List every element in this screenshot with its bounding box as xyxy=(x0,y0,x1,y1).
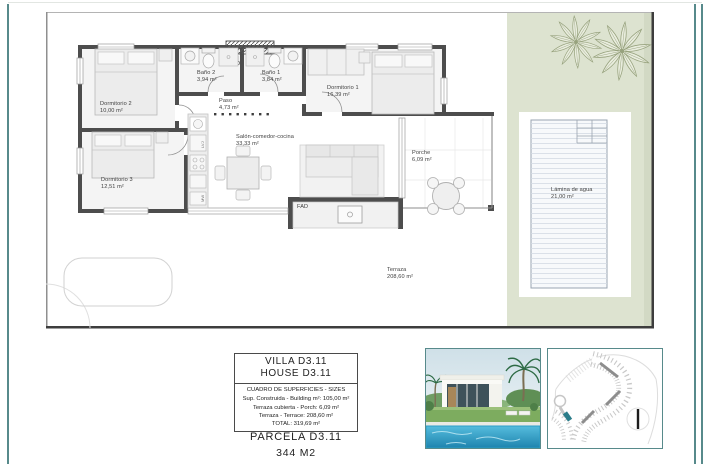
roundabout xyxy=(555,396,566,407)
kitchen-appliance-label: MW xyxy=(200,195,205,202)
room-label-dormitorio3: Dormitorio 3 12,51 m² xyxy=(101,177,133,190)
kitchen-counter: LVJ MW xyxy=(188,114,208,208)
pool xyxy=(519,112,631,297)
dining-table xyxy=(215,146,271,200)
house-title: HOUSE D3.11 xyxy=(235,368,357,380)
surface-row-terrace: Terraza - Terrace: 208,60 m² xyxy=(236,412,356,420)
room-label-bano1: Baño 1 3,84 m² xyxy=(262,70,282,83)
porch-table xyxy=(428,178,465,215)
room-label-dormitorio1: Dormitorio 1 16,39 m² xyxy=(327,85,359,98)
kitchen-appliance-label: LVJ xyxy=(200,141,205,148)
garden-area xyxy=(507,11,656,328)
parcela-area: 344 M2 xyxy=(234,447,358,459)
surface-row-building: Sup. Construida - Building m²: 105,00 m² xyxy=(236,395,356,403)
villa-render-thumbnail xyxy=(425,348,541,449)
villa-building xyxy=(440,375,504,410)
site-plan-image xyxy=(548,349,662,448)
room-label-lamina-de-agua: Lámina de agua 21,00 m² xyxy=(551,187,593,200)
villa-render-image xyxy=(426,349,540,448)
car-outline xyxy=(64,258,172,306)
sofa xyxy=(300,145,384,197)
passage-dots xyxy=(214,113,269,115)
room-label-terraza: Terraza 208,60 m² xyxy=(387,267,413,280)
surface-table-title: CUADRO DE SUPERFICIES - SIZES xyxy=(236,386,356,394)
title-block-header: VILLA D3.11 HOUSE D3.11 xyxy=(234,353,358,384)
room-label-porche: Porche 6,09 m² xyxy=(412,150,432,163)
room-label-dormitorio2: Dormitorio 2 10,00 m² xyxy=(100,101,132,114)
north-arrow-icon xyxy=(627,408,649,430)
surface-table: CUADRO DE SUPERFICIES - SIZES Sup. Const… xyxy=(234,384,358,432)
villa-title: VILLA D3.11 xyxy=(235,356,357,368)
fad-label: FAD xyxy=(297,204,308,211)
parcela-title: PARCELA D3.11 xyxy=(234,431,358,443)
title-block: VILLA D3.11 HOUSE D3.11 CUADRO DE SUPERF… xyxy=(234,353,358,432)
room-label-paso: Paso 4,73 m² xyxy=(219,98,239,111)
surface-row-total: TOTAL: 319,69 m² xyxy=(236,420,356,428)
surface-row-porch: Terraza cubierta - Porch: 6,09 m² xyxy=(236,404,356,412)
floor-plan-drawing: LVJ MW xyxy=(0,0,705,345)
plan-sheet: LVJ MW xyxy=(0,0,705,470)
wardrobe-dormitorio1 xyxy=(308,49,364,75)
terrace-platform xyxy=(293,202,398,228)
room-label-bano2: Baño 2 3,94 m² xyxy=(197,70,217,83)
site-plan-thumbnail xyxy=(547,348,663,449)
room-label-salon: Salón-comedor-cocina 33,33 m² xyxy=(236,134,294,147)
